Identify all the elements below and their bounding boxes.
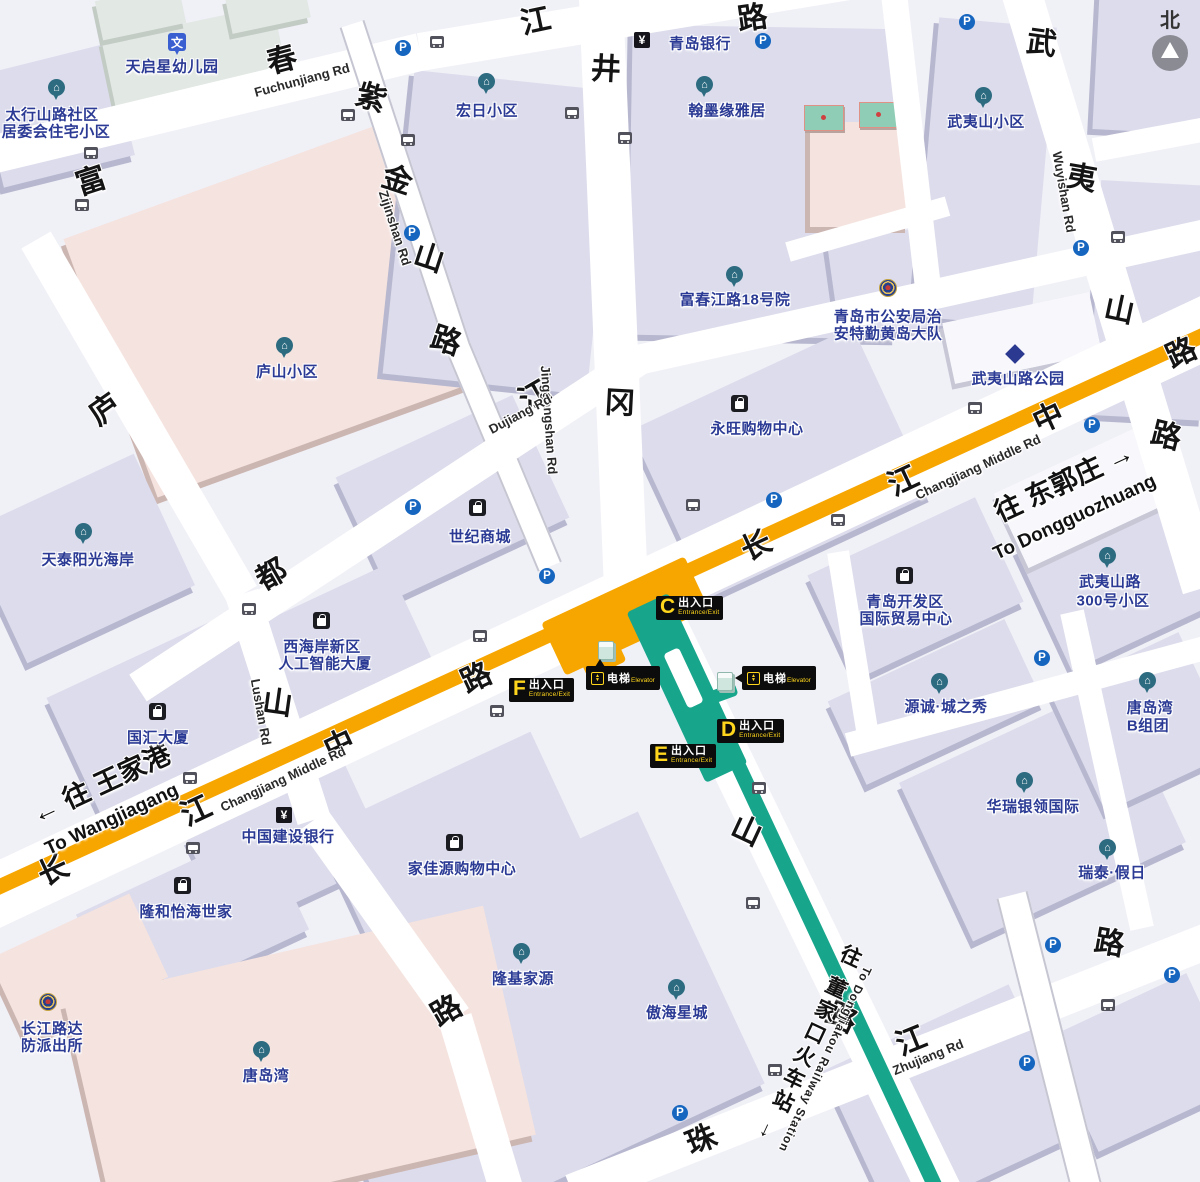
bus-stop-icon [75,199,89,211]
bus-stop-icon [84,147,98,159]
bus-stop-icon [341,109,355,121]
poi-label: 300号小区 [1076,590,1149,611]
bus-stop-icon [746,897,760,909]
elevator-label: ▲▼电梯Elevator [742,666,816,690]
poi-label: 天泰阳光海岸 [41,549,134,570]
road-label-char: 冈 [604,377,636,423]
poi-label: 隆和怡海世家 [139,901,232,922]
bus-stop-icon [183,772,197,784]
police-icon [39,993,57,1011]
court-center-dot [821,115,826,120]
poi-label: 武夷山小区 [947,111,1025,132]
house-icon: ⌂ [1099,839,1116,856]
poi-label: 国汇大厦 [127,727,189,748]
parking-icon: P [1034,650,1050,666]
house-icon: ⌂ [75,523,92,540]
poi-label: 华瑞银领国际 [986,796,1079,817]
poi-label: 隆基家源 [492,968,554,989]
poi-label: 富春江路18号院 [680,289,791,310]
poi-label: 家佳源购物中心 [408,858,517,879]
poi-label: 唐岛湾 [243,1065,290,1086]
shop-icon [149,703,166,720]
poi-label: 青岛银行 [669,33,731,54]
house-icon: ⌂ [668,979,685,996]
exit-letter: F [513,680,526,699]
police-icon [879,279,897,297]
shop-icon [313,612,330,629]
parking-icon: P [766,492,782,508]
school-icon: 文 [168,33,186,51]
exit-c-label: C出入口Entrance/Exit [656,596,723,620]
poi-label: 中国建设银行 [241,826,334,847]
exit-letter: D [721,721,736,740]
shop-icon [469,499,486,516]
exit-label-en: Entrance/Exit [739,733,780,740]
exit-d-label: D出入口Entrance/Exit [717,719,784,743]
exit-letter: C [660,598,675,617]
bus-stop-icon [768,1064,782,1076]
parking-icon: P [1019,1055,1035,1071]
house-icon: ⌂ [1099,547,1116,564]
exit-e-label: E出入口Entrance/Exit [650,744,716,768]
house-icon: ⌂ [513,943,530,960]
shop-icon [446,834,463,851]
bus-stop-icon [242,603,256,615]
poi-label: 人工智能大厦 [278,653,371,674]
exit-letter: E [654,746,668,765]
elevator-cube-icon [598,641,614,660]
bus-stop-icon [473,630,487,642]
parking-icon: P [405,499,421,515]
north-arrow-icon [1152,35,1188,71]
parking-icon: P [755,33,771,49]
court-center-dot [876,112,881,117]
house-icon: ⌂ [975,87,992,104]
north-label: 北 [1146,4,1194,33]
bus-stop-icon [1101,999,1115,1011]
road-label-char: 武 [1024,16,1060,64]
bus-stop-icon [618,132,632,144]
bus-stop-icon [490,705,504,717]
bus-stop-icon [401,134,415,146]
parking-icon: P [539,568,555,584]
parking-icon: P [395,40,411,56]
poi-label: 宏日小区 [456,100,518,121]
shop-icon [731,395,748,412]
parking-icon: P [404,225,420,241]
bus-stop-icon [968,402,982,414]
elevator-cube-icon [717,672,733,691]
house-icon: ⌂ [276,337,293,354]
metro-station-area-map: 北 富春江路紫金山路井冈山路都江庐山路长江中路长江中路武夷山路珠江路Fuchun… [0,0,1200,1182]
poi-label: 世纪商城 [449,526,511,547]
elevator-icon: ▲▼ [591,672,604,685]
parking-icon: P [1084,417,1100,433]
parking-icon: P [959,14,975,30]
poi-label: 傲海星城 [646,1002,708,1023]
bus-stop-icon [686,499,700,511]
bank-icon: ¥ [634,32,650,48]
exit-f-label: F出入口Entrance/Exit [509,678,574,702]
house-icon: ⌂ [931,673,948,690]
poi-label: 安特勤黄岛大队 [834,323,943,344]
elevator-label-zh: 电梯 [607,673,631,685]
poi-label: 防派出所 [21,1035,83,1056]
elevator-label: ▲▼电梯Elevator [586,666,660,690]
bus-stop-icon [752,782,766,794]
bus-stop-icon [430,36,444,48]
poi-label: 庐山小区 [256,361,318,382]
bus-stop-icon [831,514,845,526]
poi-label: 天启星幼儿园 [125,56,218,77]
shop-icon [896,567,913,584]
exit-label-en: Entrance/Exit [678,610,719,617]
house-icon: ⌂ [478,73,495,90]
poi-label: 瑞泰·假日 [1078,862,1146,883]
exit-label-en: Entrance/Exit [529,692,570,699]
north-indicator: 北 [1146,4,1194,71]
parking-icon: P [1045,937,1061,953]
elevator-label-en: Elevator [631,677,655,684]
poi-label: 源诚·城之秀 [905,696,988,717]
parking-icon: P [672,1105,688,1121]
elevator-icon: ▲▼ [747,672,760,685]
bus-stop-icon [186,842,200,854]
bus-stop-icon [1111,231,1125,243]
parking-icon: P [1073,240,1089,256]
elevator-label-en: Elevator [787,677,811,684]
house-icon: ⌂ [253,1041,270,1058]
house-icon: ⌂ [1139,672,1156,689]
house-icon: ⌂ [1016,772,1033,789]
house-icon: ⌂ [696,76,713,93]
poi-label: 居委会住宅小区 [2,121,111,142]
shop-icon [174,877,191,894]
house-icon: ⌂ [48,79,65,96]
bank-icon: ¥ [276,807,292,823]
parking-icon: P [1164,967,1180,983]
poi-label: 武夷山路公园 [971,368,1064,389]
poi-label: 武夷山路 [1079,571,1141,592]
poi-label: 翰墨缘雅居 [688,100,766,121]
poi-label: B组团 [1127,715,1169,736]
elevator-label-zh: 电梯 [763,673,787,685]
poi-label: 国际贸易中心 [859,608,952,629]
exit-label-en: Entrance/Exit [671,758,712,765]
house-icon: ⌂ [726,266,743,283]
bus-stop-icon [565,107,579,119]
road-label-char: 井 [590,43,622,89]
poi-label: 永旺购物中心 [710,418,803,439]
